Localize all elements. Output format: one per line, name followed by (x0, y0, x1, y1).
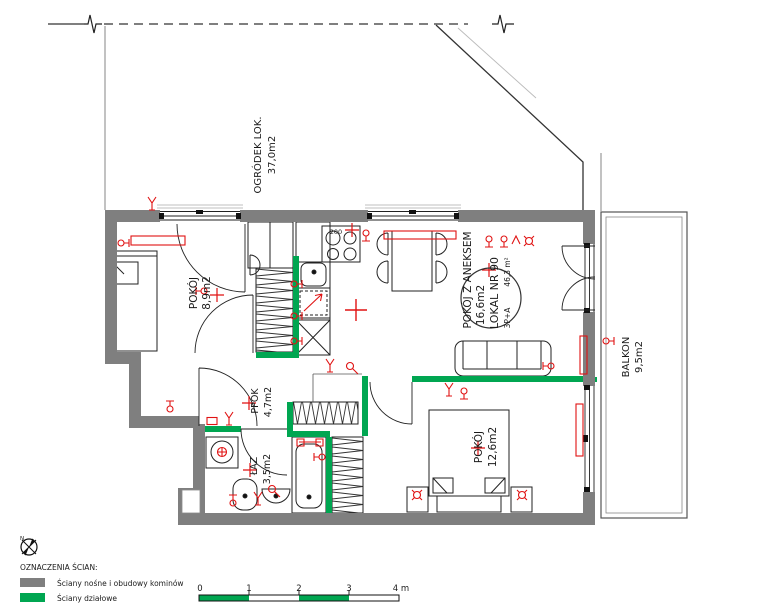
unit-area: 46,3 m² (503, 257, 512, 286)
window-bedroom (582, 385, 596, 492)
garden-diagonal-2 (458, 28, 536, 98)
wall-left-mid (129, 362, 141, 424)
balcony-door-opening (582, 243, 596, 313)
boundary-break-left-icon (84, 15, 102, 33)
wall-bottom (193, 513, 595, 525)
window-kitchen (365, 205, 461, 223)
floor-plan-drawing: 200 OGRÓDEK LOK. 37,0m2 POKÓJ 8,9m2 POKÓ… (0, 0, 759, 608)
legend-swatch-load-bearing (20, 578, 45, 587)
floor-plan-page: 200 OGRÓDEK LOK. 37,0m2 POKÓJ 8,9m2 POKÓ… (0, 0, 759, 608)
room-label-bedroom: POKÓJ (472, 431, 485, 463)
wall-left (105, 210, 117, 364)
scale-tick-label: 2 (296, 584, 301, 594)
room-area-garden: 37,0m2 (267, 136, 278, 174)
garden-boundary (48, 15, 601, 211)
wall-bottom-left (129, 416, 199, 428)
scale-bar: 0 1 2 3 4 m (197, 584, 409, 601)
scale-tick-label: 0 (197, 584, 202, 594)
partition-wall (412, 376, 583, 382)
compass-north-label: N (20, 536, 24, 542)
partition-wall (256, 352, 299, 358)
scale-tick-label: 1 (246, 584, 251, 594)
scale-segment-1 (199, 595, 249, 601)
partition-wall (287, 402, 293, 432)
scale-segment-4 (349, 595, 399, 601)
window-room1 (157, 205, 243, 223)
niche-opening (182, 490, 200, 513)
tap-icon (148, 197, 156, 210)
room-area-hall: 4,7m2 (263, 387, 274, 417)
legend-swatch-partition (20, 593, 45, 602)
scale-tick-label: 3 (346, 584, 351, 594)
partition-wall (326, 437, 332, 513)
room-label-bath: ŁAZ (249, 456, 260, 476)
scale-segment-3 (299, 595, 349, 601)
boundary-break-right-icon (492, 15, 514, 33)
hall-wardrobe (293, 402, 358, 424)
unit-name: LOKAL NR 90 (488, 257, 501, 329)
scale-segment-2 (249, 595, 299, 601)
room-label-room1: POKÓJ (187, 277, 200, 309)
room-area-room1: 8,9m2 (201, 276, 213, 310)
scale-tick-label: 4 m (393, 584, 409, 594)
stove-annotation: 200 (330, 228, 342, 236)
closet (332, 437, 363, 513)
room-area-bedroom: 12,6m2 (487, 427, 499, 467)
legend-label-partition: Ściany działowe (57, 594, 117, 603)
partition-wall (287, 431, 330, 437)
room-area-bath: 3,5m2 (262, 454, 273, 484)
room-area-living: 16,6m2 (475, 285, 487, 325)
garden-diagonal (436, 25, 583, 210)
washer-connection-icon (218, 448, 227, 457)
room-area-balcony: 9,5m2 (634, 341, 645, 373)
room-label-hall: PPOK (250, 388, 261, 414)
unit-type: 3P+A (503, 307, 512, 329)
room-label-living: POKÓJ Z ANEKSEM (461, 231, 474, 328)
legend: N OZNACZENIA ŚCIAN: Ściany nośne i obudo… (20, 536, 184, 603)
socket-icon (603, 337, 614, 345)
wardrobe-room1 (256, 268, 293, 352)
legend-title: OZNACZENIA ŚCIAN: (20, 563, 98, 572)
room-label-balcony: BALKON (621, 337, 632, 378)
partition-wall (362, 376, 368, 436)
room-label-garden: OGRÓDEK LOK. (251, 116, 264, 193)
kitchen-sink-drain (312, 270, 316, 274)
legend-label-load-bearing: Ściany nośne i obudowy kominów (57, 579, 184, 588)
